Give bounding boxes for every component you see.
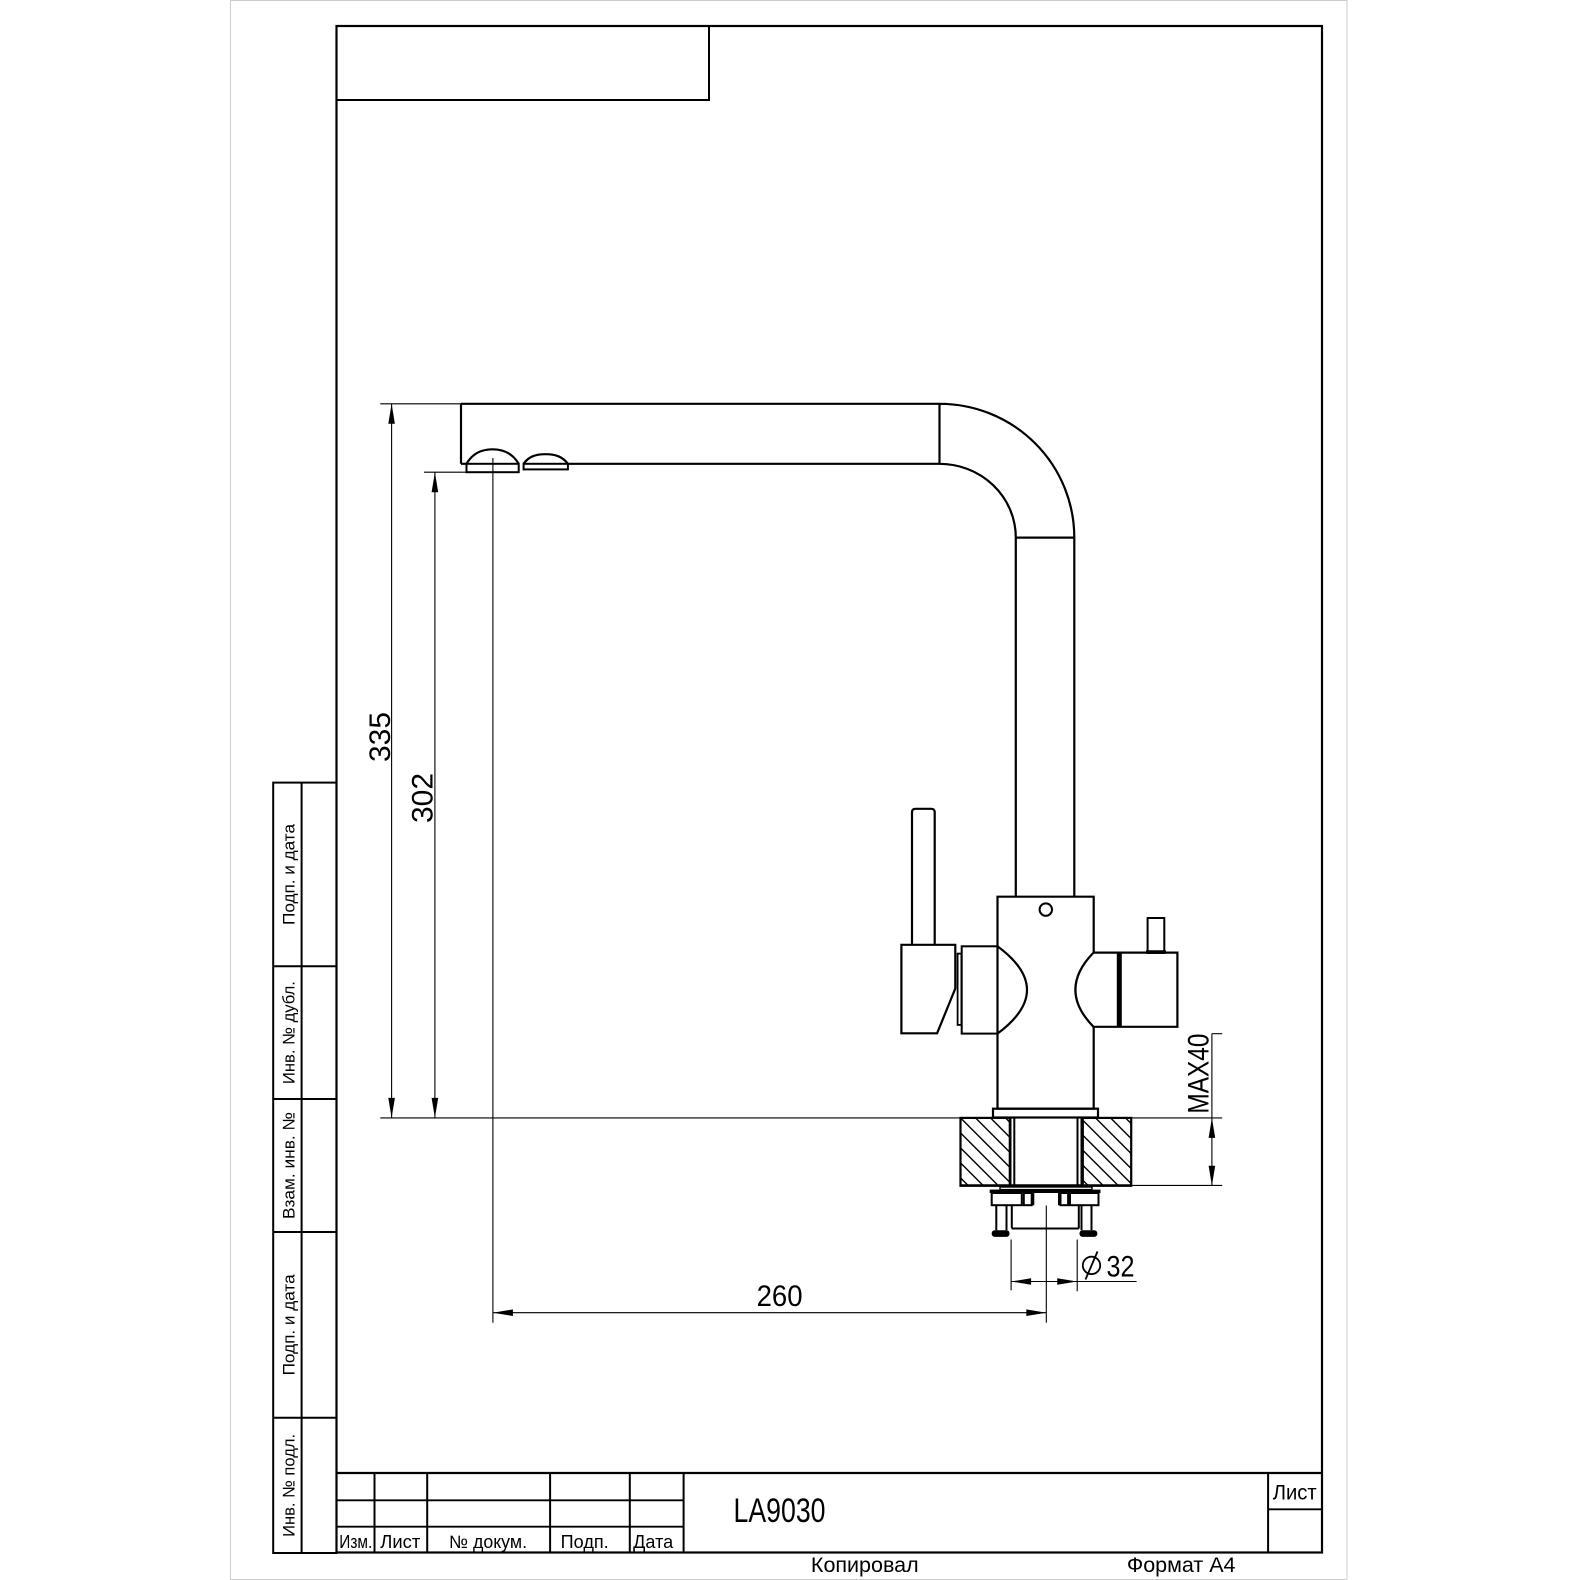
svg-text:302: 302 <box>407 773 440 823</box>
svg-text:MAX40: MAX40 <box>1183 1034 1216 1114</box>
svg-text:Инв. № дубл.: Инв. № дубл. <box>280 981 299 1084</box>
svg-text:Лист: Лист <box>1273 1482 1317 1505</box>
svg-text:Формат А4: Формат А4 <box>1127 1553 1236 1577</box>
svg-text:32: 32 <box>1107 1251 1135 1284</box>
svg-text:260: 260 <box>757 1280 803 1313</box>
svg-text:Подп.: Подп. <box>561 1532 609 1552</box>
svg-text:Дата: Дата <box>633 1532 674 1552</box>
svg-text:Подп. и дата: Подп. и дата <box>280 823 299 925</box>
svg-text:Подп. и дата: Подп. и дата <box>280 1274 299 1376</box>
svg-text:Лист: Лист <box>380 1532 420 1552</box>
svg-text:335: 335 <box>364 712 397 762</box>
svg-text:Инв. № подл.: Инв. № подл. <box>280 1434 299 1537</box>
svg-text:Копировал: Копировал <box>811 1553 919 1577</box>
svg-text:Взам. инв. №: Взам. инв. № <box>280 1112 299 1219</box>
svg-text:LA9030: LA9030 <box>734 1492 826 1530</box>
svg-text:Изм.: Изм. <box>339 1532 372 1552</box>
svg-text:№ докум.: № докум. <box>449 1532 527 1552</box>
